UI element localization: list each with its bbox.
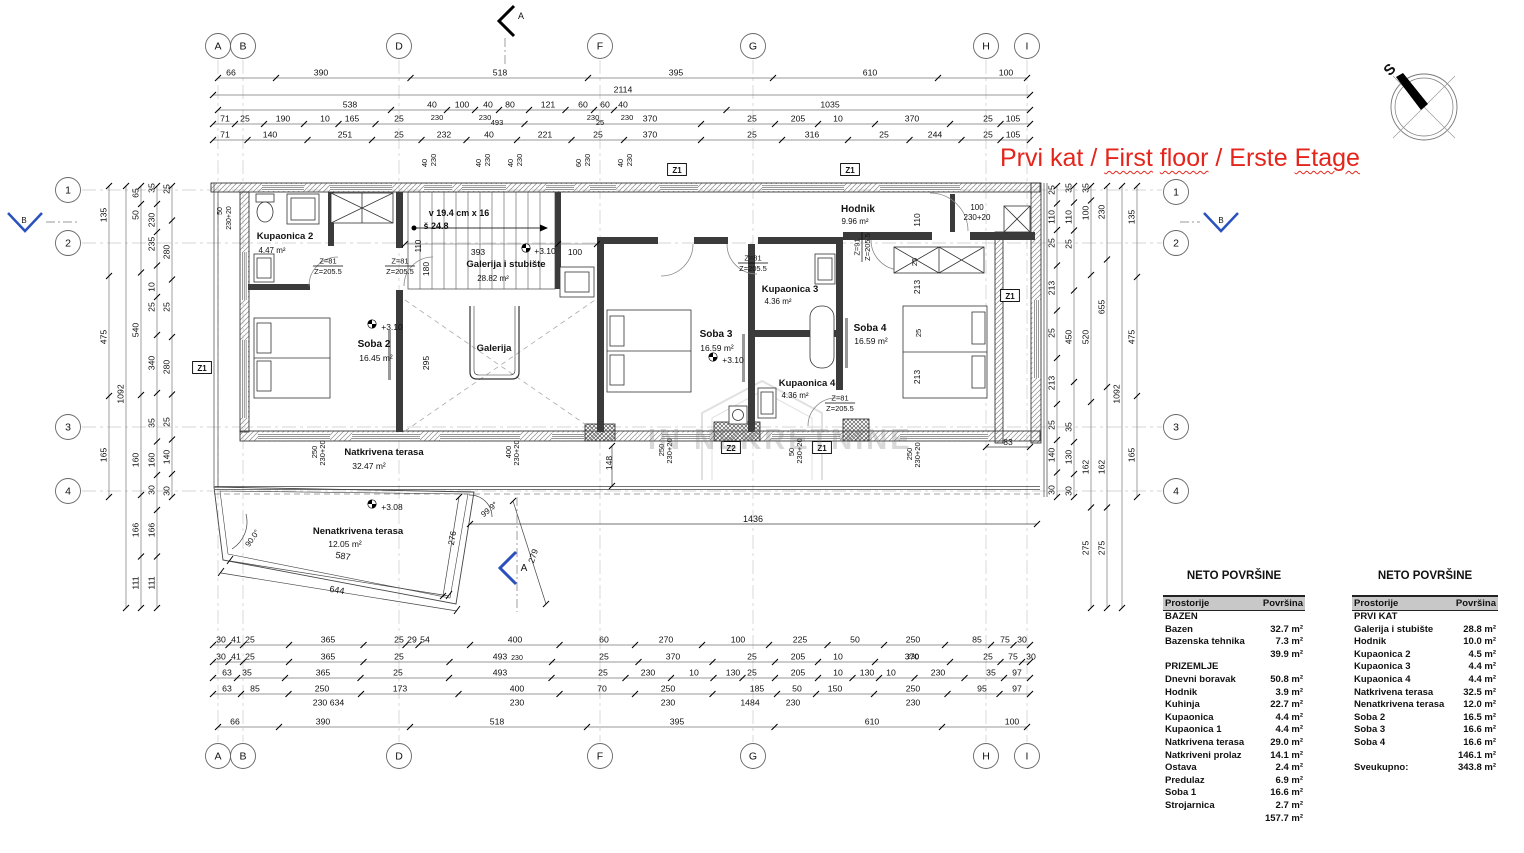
dim-label: 205 bbox=[791, 652, 806, 662]
room-name: Soba 2 bbox=[1354, 712, 1385, 725]
grid-bubble: H bbox=[974, 744, 999, 769]
dim-label: 1 bbox=[65, 185, 71, 197]
dim-label: 99.9° bbox=[479, 500, 499, 519]
dim-label: A bbox=[214, 41, 221, 53]
dim-label: 2 bbox=[1173, 238, 1179, 250]
dim-label: 25 bbox=[1047, 238, 1057, 248]
dim-label: F bbox=[597, 751, 603, 763]
grid-bubble: 1 bbox=[1164, 180, 1189, 205]
dim-label: 135 bbox=[99, 208, 109, 223]
dim-label: 50 bbox=[792, 684, 802, 694]
dim-label: 160 bbox=[147, 453, 157, 468]
dim-label: Z=81 bbox=[831, 394, 848, 403]
dim-label: 110 bbox=[912, 213, 922, 227]
dim-label: Z=205.5 bbox=[739, 264, 767, 273]
annotation: 213 bbox=[912, 370, 922, 384]
floor-plan-sheet: 6639051839561010021145384010040801216060… bbox=[0, 0, 1524, 853]
dim-label: 100 bbox=[731, 635, 746, 645]
dimension-row: 2306342302301484230230 bbox=[313, 698, 921, 708]
dim-label: 105 bbox=[1006, 130, 1021, 140]
annotation: 279 bbox=[526, 547, 540, 564]
annotation: 40 bbox=[616, 159, 625, 167]
dim-label: Z1 bbox=[672, 166, 682, 175]
room-area: 32.5 m² bbox=[1463, 687, 1496, 700]
dim-label: š 24.8 bbox=[423, 221, 448, 231]
annotation: 230 bbox=[621, 113, 634, 122]
dim-label: B bbox=[239, 751, 246, 763]
room-name: Bazenska tehnika bbox=[1165, 636, 1245, 649]
dim-label: 250 bbox=[906, 684, 921, 694]
room-area: 16.5 m² bbox=[1463, 712, 1496, 725]
dim-label: 185 bbox=[750, 684, 765, 694]
dim-label: +3.10 bbox=[381, 322, 403, 332]
annotation: 230+20 bbox=[913, 442, 922, 467]
annotation: 230 bbox=[511, 655, 523, 662]
dim-label: Kupaonica 3 bbox=[762, 284, 819, 295]
dim-label: 173 bbox=[393, 684, 408, 694]
dim-label: 80 bbox=[505, 100, 515, 110]
dim-label: 25 bbox=[394, 114, 404, 124]
dim-label: 10 bbox=[320, 114, 330, 124]
dim-label: 100 bbox=[999, 68, 1014, 78]
dim-label: Z=205.5 bbox=[826, 404, 854, 413]
dim-label: 25 bbox=[910, 258, 919, 266]
dim-label: 9.96 m² bbox=[841, 217, 868, 226]
dim-label: 25 bbox=[147, 302, 157, 312]
annotation: A bbox=[521, 563, 528, 574]
annotation: 40 bbox=[506, 159, 515, 167]
grid-bubble: 4 bbox=[1164, 479, 1189, 504]
dim-label: 16.45 m² bbox=[359, 353, 393, 363]
dim-label: 610 bbox=[863, 68, 878, 78]
table-row: PRIZEMLJE bbox=[1163, 661, 1305, 674]
dim-label: 71 bbox=[220, 114, 230, 124]
dim-label: 190 bbox=[276, 114, 291, 124]
annotation: Soba 3 bbox=[700, 329, 733, 340]
dim-label: 275 bbox=[1097, 541, 1107, 556]
table-row: BAZEN bbox=[1163, 611, 1305, 624]
dim-label: 370 bbox=[905, 114, 920, 124]
dimension-column: 25280252802514030 bbox=[162, 183, 176, 500]
dim-label: 162 bbox=[1081, 460, 1091, 475]
annotation: B bbox=[21, 216, 26, 225]
dim-label: 25 bbox=[914, 329, 923, 337]
dim-label: 83 bbox=[1003, 437, 1013, 447]
dim-label: 2 bbox=[65, 238, 71, 250]
annotation: 230 bbox=[479, 113, 492, 122]
annotation: 4.36 m² bbox=[781, 391, 808, 400]
col-povrsina: Površina bbox=[1263, 597, 1303, 610]
dim-label: 235 bbox=[147, 237, 157, 252]
table-row: Hodnik10.0 m² bbox=[1352, 636, 1498, 649]
dim-label: Galerija bbox=[477, 343, 513, 354]
table-row: 146.1 m² bbox=[1352, 750, 1498, 763]
grid-bubble: B bbox=[231, 34, 256, 59]
dim-label: Kupaonica 4 bbox=[779, 378, 836, 389]
room-name: Kupaonica bbox=[1165, 712, 1214, 725]
dim-label: 1 bbox=[1173, 187, 1179, 199]
dim-label: Z=81 bbox=[744, 254, 761, 263]
table-row: Strojarnica2.7 m² bbox=[1163, 800, 1305, 813]
dim-label: 130 bbox=[1064, 450, 1074, 465]
dim-label: 390 bbox=[314, 68, 329, 78]
dimension-column: 35110254503513030 bbox=[1064, 183, 1078, 500]
annotation: 16.45 m² bbox=[359, 353, 393, 363]
annotation: 180 bbox=[421, 262, 431, 276]
dim-label: 230+20 bbox=[512, 440, 521, 465]
dim-label: 25 bbox=[162, 417, 172, 427]
dim-label: 30 bbox=[162, 486, 172, 496]
table-row: Sveukupno:343.8 m² bbox=[1352, 762, 1498, 775]
grid-bubble: I bbox=[1015, 34, 1040, 59]
annotation: 100 bbox=[970, 203, 984, 212]
dim-label: 390 bbox=[316, 717, 331, 727]
dim-label: 30 bbox=[216, 635, 226, 645]
dim-label: +3.10 bbox=[722, 355, 744, 365]
grid-bubble: 3 bbox=[1164, 415, 1189, 440]
dim-label: 400 bbox=[508, 635, 523, 645]
annotation: Kupaonica 4 bbox=[779, 378, 836, 389]
dim-label: 25 bbox=[162, 184, 172, 194]
dim-label: 10 bbox=[689, 668, 699, 678]
dim-label: 165 bbox=[1127, 448, 1137, 463]
room-name: Bazen bbox=[1165, 624, 1193, 637]
annotation: 213 bbox=[912, 280, 922, 294]
annotation: +3.10 bbox=[381, 322, 403, 332]
room-area: 6.9 m² bbox=[1276, 775, 1303, 788]
dim-label: A bbox=[214, 751, 221, 763]
dim-label: A bbox=[518, 11, 524, 21]
dim-label: 295 bbox=[421, 356, 431, 370]
dim-label: 230 bbox=[313, 698, 328, 708]
dim-label: 244 bbox=[928, 130, 943, 140]
annotation: 393 bbox=[471, 247, 485, 257]
dim-label: 230 bbox=[511, 655, 523, 662]
dim-label: Soba 2 bbox=[358, 339, 391, 350]
room-name: Natkriveni prolaz bbox=[1165, 750, 1242, 763]
dim-label: 10 bbox=[833, 114, 843, 124]
annotation: 230 bbox=[625, 154, 634, 167]
room-area: 3.9 m² bbox=[1276, 687, 1303, 700]
annotation: 230+20 bbox=[512, 440, 521, 465]
annotation: 110 bbox=[414, 239, 423, 252]
dim-label: 140 bbox=[1047, 448, 1057, 463]
dim-label: 28.82 m² bbox=[477, 274, 509, 283]
dim-label: 16.59 m² bbox=[854, 336, 888, 346]
room-area: 4.4 m² bbox=[1276, 712, 1303, 725]
grid-bubble: I bbox=[1015, 744, 1040, 769]
dim-label: 40 bbox=[420, 159, 429, 167]
annotation: 60 bbox=[574, 159, 583, 167]
dim-label: 100 bbox=[1005, 717, 1020, 727]
grid-bubble: A bbox=[206, 34, 231, 59]
dim-label: 230+20 bbox=[913, 442, 922, 467]
dim-label: 121 bbox=[541, 100, 556, 110]
table-row: Bazenska tehnika7.3 m² bbox=[1163, 636, 1305, 649]
title-word: floor bbox=[1160, 144, 1209, 172]
dim-label: 166 bbox=[131, 523, 141, 538]
dim-label: +3.08 bbox=[381, 502, 403, 512]
title-word: Etage bbox=[1295, 144, 1360, 172]
dim-label: Z1 bbox=[845, 166, 855, 175]
dim-label: 105 bbox=[1006, 114, 1021, 124]
dim-label: 71 bbox=[220, 130, 230, 140]
dim-label: 213 bbox=[912, 280, 922, 294]
annotation: 100 bbox=[568, 247, 582, 257]
room-name: Strojarnica bbox=[1165, 800, 1215, 813]
annotation: 587 bbox=[335, 550, 351, 562]
dim-label: 232 bbox=[437, 130, 452, 140]
room-area: 28.8 m² bbox=[1463, 624, 1496, 637]
room-name: Predulaz bbox=[1165, 775, 1205, 788]
dim-label: 230 bbox=[510, 698, 525, 708]
dim-label: 250 bbox=[315, 684, 330, 694]
dim-label: 25 bbox=[593, 130, 603, 140]
dim-label: 30 bbox=[1017, 635, 1027, 645]
dim-label: 520 bbox=[1081, 330, 1091, 345]
dim-label: 276 bbox=[446, 530, 458, 546]
dim-label: Galerija i stubište bbox=[466, 259, 545, 270]
table-row: Natkrivena terasa29.0 m² bbox=[1163, 737, 1305, 750]
dim-label: 280 bbox=[162, 360, 172, 375]
room-area: 7.3 m² bbox=[1276, 636, 1303, 649]
dim-label: 230 bbox=[583, 154, 592, 167]
dim-label: 316 bbox=[805, 130, 820, 140]
dim-label: B bbox=[21, 216, 26, 225]
table-row: Nenatkrivena terasa12.0 m² bbox=[1352, 699, 1498, 712]
room-name: Kupaonica 4 bbox=[1354, 674, 1411, 687]
annotation: Natkrivena terasa bbox=[344, 447, 424, 458]
dim-label: 230 bbox=[483, 154, 492, 167]
table-row: Dnevni boravak50.8 m² bbox=[1163, 674, 1305, 687]
dim-label: 35 bbox=[147, 183, 157, 193]
dim-label: 518 bbox=[493, 68, 508, 78]
dim-label: 230 bbox=[661, 698, 676, 708]
dim-label: 110 bbox=[414, 239, 423, 252]
annotation: Kupaonica 2 bbox=[257, 231, 314, 242]
grid-bubble: B bbox=[231, 744, 256, 769]
dim-label: 230+20 bbox=[964, 213, 991, 222]
dim-label: Nenatkrivena terasa bbox=[313, 526, 404, 537]
dim-label: 3 bbox=[65, 422, 71, 434]
dim-label: S bbox=[1380, 60, 1399, 79]
dim-label: 25 bbox=[245, 635, 255, 645]
room-area: 39.9 m² bbox=[1270, 649, 1303, 662]
room-area: 4.4 m² bbox=[1469, 661, 1496, 674]
annotation: 4.47 m² bbox=[258, 246, 285, 255]
dim-label: 365 bbox=[321, 652, 336, 662]
room-name: PRIZEMLJE bbox=[1165, 661, 1218, 674]
dim-label: Z=81 bbox=[391, 257, 408, 266]
col-povrsina: Površina bbox=[1456, 597, 1496, 610]
room-name: Sveukupno: bbox=[1354, 762, 1408, 775]
dimension-column: 3523023510253403516030166111 bbox=[147, 183, 161, 611]
dim-label: 230 bbox=[906, 698, 921, 708]
annotation: +3.10 bbox=[534, 246, 556, 256]
grid-bubble: F bbox=[588, 34, 613, 59]
room-area: 16.6 m² bbox=[1463, 737, 1496, 750]
dim-label: 1035 bbox=[820, 100, 839, 110]
annotation: 493 bbox=[491, 118, 504, 127]
dim-label: 230 bbox=[147, 213, 157, 228]
dim-label: Z=205.5 bbox=[314, 267, 342, 276]
dim-label: I bbox=[1026, 751, 1029, 763]
annotation: 230 bbox=[907, 654, 919, 661]
dim-label: 205 bbox=[791, 668, 806, 678]
dim-label: 25 bbox=[393, 668, 403, 678]
dim-label: 29 bbox=[407, 635, 417, 645]
dim-label: 540 bbox=[131, 323, 141, 338]
annotation: Z=91Z=205.5 bbox=[853, 232, 873, 262]
room-area: 29.0 m² bbox=[1270, 737, 1303, 750]
annotation: 16.59 m² bbox=[700, 343, 734, 353]
dimension-row: 6335365254932523010130252051013010230359… bbox=[210, 668, 1033, 682]
dim-label: Soba 3 bbox=[700, 329, 733, 340]
dimension-column: 1092 bbox=[1112, 183, 1126, 611]
dim-label: 70 bbox=[597, 684, 607, 694]
table-row: Ostava2.4 m² bbox=[1163, 762, 1305, 775]
grid-bubble: G bbox=[741, 34, 766, 59]
title-word: / bbox=[1215, 144, 1222, 172]
room-name: Soba 3 bbox=[1354, 724, 1385, 737]
dim-label: 230 bbox=[907, 654, 919, 661]
dim-label: 400 bbox=[510, 684, 525, 694]
dim-label: 230 bbox=[625, 154, 634, 167]
room-area: 157.7 m² bbox=[1265, 813, 1303, 826]
dim-label: 213 bbox=[912, 370, 922, 384]
table-row: Natkriveni prolaz14.1 m² bbox=[1163, 750, 1305, 763]
dim-label: 25 bbox=[598, 668, 608, 678]
dim-label: 25 bbox=[879, 130, 889, 140]
annotation: 40 bbox=[420, 159, 429, 167]
room-name: Kupaonica 1 bbox=[1165, 724, 1222, 737]
dim-label: 35 bbox=[986, 668, 996, 678]
dim-label: 97 bbox=[1012, 684, 1022, 694]
grid-bubble: A bbox=[206, 744, 231, 769]
grid-bubble: 2 bbox=[1164, 231, 1189, 256]
grid-bubble: D bbox=[387, 34, 412, 59]
table-row: Galerija i stubište28.8 m² bbox=[1352, 624, 1498, 637]
dim-label: D bbox=[395, 751, 403, 763]
room-name: Kupaonica 3 bbox=[1354, 661, 1411, 674]
dim-label: 538 bbox=[343, 100, 358, 110]
dim-label: 4.36 m² bbox=[764, 297, 791, 306]
dim-label: 230 bbox=[931, 668, 946, 678]
dim-label: 25 bbox=[394, 652, 404, 662]
annotation: 148 bbox=[604, 456, 614, 470]
dim-label: 395 bbox=[670, 717, 685, 727]
table-row: 39.9 m² bbox=[1163, 649, 1305, 662]
room-area: 4.4 m² bbox=[1276, 724, 1303, 737]
table-header: ProstorijePovršina bbox=[1352, 595, 1498, 611]
annotation: 230 bbox=[483, 154, 492, 167]
grid-bubble: 2 bbox=[56, 231, 81, 256]
annotation: +3.10 bbox=[722, 355, 744, 365]
dimension-row: 2114 bbox=[210, 85, 1033, 99]
room-area: 4.5 m² bbox=[1469, 649, 1496, 662]
dim-label: 10 bbox=[833, 668, 843, 678]
dim-label: 30 bbox=[216, 652, 226, 662]
dim-label: 30 bbox=[1026, 652, 1036, 662]
annotation: 230 bbox=[515, 154, 524, 167]
dim-label: 25 bbox=[162, 302, 172, 312]
annotation: 276 bbox=[446, 530, 458, 546]
dim-label: B bbox=[239, 41, 246, 53]
dim-label: 100 bbox=[568, 247, 582, 257]
annotation: 50 bbox=[217, 207, 224, 215]
dim-label: 4 bbox=[65, 486, 71, 498]
plan-title: Prvi kat / First floor / Erste Etage bbox=[1000, 144, 1420, 173]
table-row: Kuhinja22.7 m² bbox=[1163, 699, 1305, 712]
dim-label: 85 bbox=[972, 635, 982, 645]
dim-label: B bbox=[1218, 216, 1223, 225]
annotation: Galerija bbox=[477, 343, 513, 354]
grid-bubble: D bbox=[387, 744, 412, 769]
room-area: 343.8 m² bbox=[1458, 762, 1496, 775]
room-name: PRVI KAT bbox=[1354, 611, 1397, 624]
annotation: Soba 2 bbox=[358, 339, 391, 350]
grid-bubble: H bbox=[974, 34, 999, 59]
dim-label: 610 bbox=[865, 717, 880, 727]
dim-label: 85 bbox=[250, 684, 260, 694]
dim-label: 25 bbox=[747, 668, 757, 678]
room-area: 4.4 m² bbox=[1469, 674, 1496, 687]
dim-label: 50 bbox=[850, 635, 860, 645]
dim-label: 280 bbox=[162, 245, 172, 260]
dim-label: 40 bbox=[427, 100, 437, 110]
annotation: 40 bbox=[474, 159, 483, 167]
room-name: Natkrivena terasa bbox=[1354, 687, 1433, 700]
table-title: NETO POVRŠINE bbox=[1163, 570, 1305, 582]
room-name: Dnevni boravak bbox=[1165, 674, 1236, 687]
dim-label: 50 bbox=[217, 207, 224, 215]
room-area: 146.1 m² bbox=[1458, 750, 1496, 763]
dim-label: 148 bbox=[604, 456, 614, 470]
table-row: Predulaz6.9 m² bbox=[1163, 775, 1305, 788]
dim-label: 230+20 bbox=[318, 440, 327, 465]
room-name: Soba 1 bbox=[1165, 787, 1196, 800]
dimension-row: 66390518395610100 bbox=[215, 68, 1030, 82]
dimension-column: 2511025213252132514030 bbox=[1047, 183, 1061, 500]
annotation: 4.36 m² bbox=[764, 297, 791, 306]
dim-label: 35 bbox=[1064, 183, 1074, 193]
annotation: Z1 bbox=[1001, 290, 1020, 302]
dim-label: 40 bbox=[474, 159, 483, 167]
dimension-row: 71140251252324022125370253162524425105 bbox=[210, 130, 1033, 144]
dim-label: 395 bbox=[669, 68, 684, 78]
dimension-column: 35100520162275 bbox=[1081, 183, 1095, 611]
dim-label: Z=91 bbox=[853, 238, 862, 255]
dimension-column: 1092 bbox=[116, 183, 130, 611]
table-row: Soba 416.6 m² bbox=[1352, 737, 1498, 750]
dim-label: 25 bbox=[599, 652, 609, 662]
dim-label: 165 bbox=[345, 114, 360, 124]
watermark-text: IN NEKRETNINE bbox=[648, 424, 888, 457]
dim-label: 393 bbox=[471, 247, 485, 257]
dim-label: 230 bbox=[479, 113, 492, 122]
dimension-column: 135475165 bbox=[1127, 183, 1141, 500]
dim-label: 162 bbox=[1097, 460, 1107, 475]
area-table-prvi-kat: NETO POVRŠINEProstorijePovršinaPRVI KATG… bbox=[1352, 570, 1498, 775]
dim-label: 35 bbox=[1064, 422, 1074, 432]
dim-label: D bbox=[395, 41, 403, 53]
dim-label: 41 bbox=[231, 635, 241, 645]
table-row: Soba 116.6 m² bbox=[1163, 787, 1305, 800]
annotation: Soba 4 bbox=[854, 323, 887, 334]
annotation: S bbox=[1380, 60, 1399, 79]
table-row: 157.7 m² bbox=[1163, 813, 1305, 826]
dim-label: 140 bbox=[263, 130, 278, 140]
